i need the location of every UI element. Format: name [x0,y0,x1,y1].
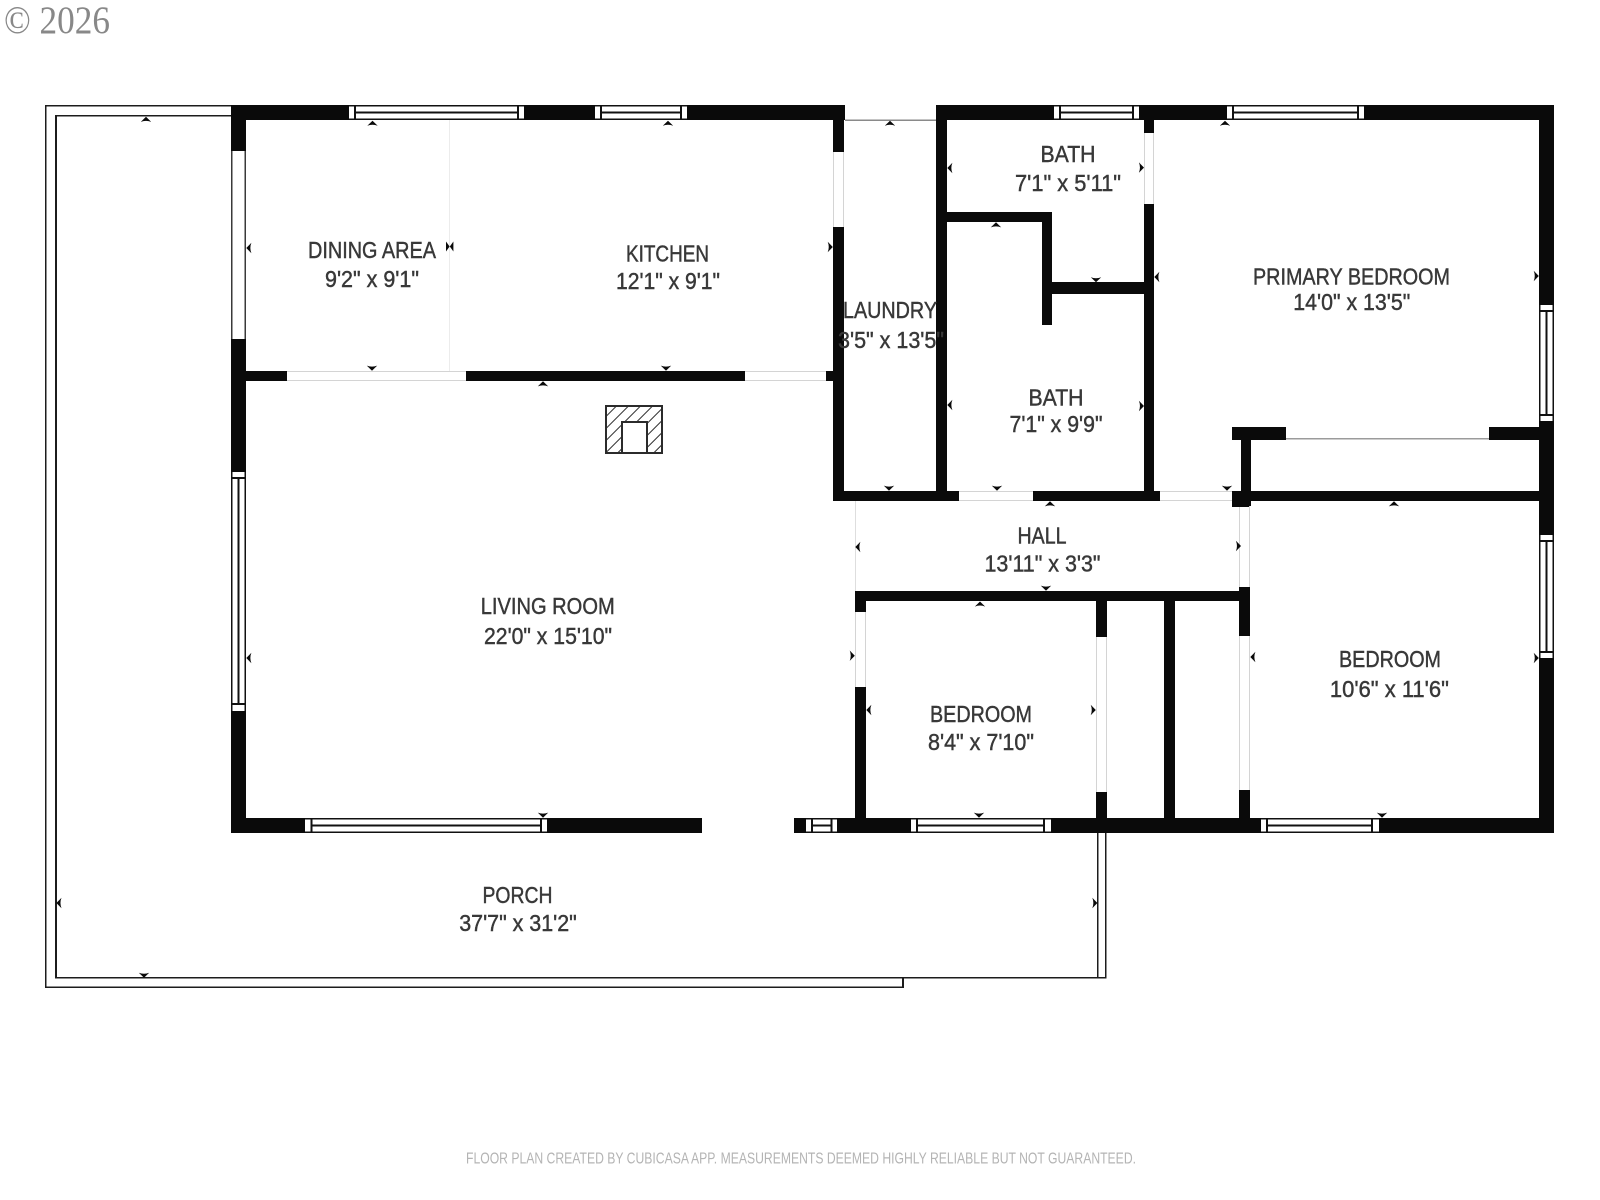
svg-text:PORCH: PORCH [483,882,553,908]
svg-text:BATH: BATH [1029,385,1084,411]
svg-text:22'0" x 15'10": 22'0" x 15'10" [484,623,612,649]
svg-text:8'4" x 7'10": 8'4" x 7'10" [928,729,1034,755]
svg-text:37'7" x 31'2": 37'7" x 31'2" [459,910,577,936]
svg-text:7'1" x 9'9": 7'1" x 9'9" [1010,411,1103,437]
svg-text:12'1" x 9'1": 12'1" x 9'1" [616,268,720,294]
svg-text:3'5" x 13'5": 3'5" x 13'5" [838,327,944,353]
svg-text:HALL: HALL [1018,523,1067,549]
svg-text:BATH: BATH [1041,141,1096,167]
svg-text:BEDROOM: BEDROOM [930,701,1032,727]
svg-text:LIVING ROOM: LIVING ROOM [481,593,615,619]
svg-text:BEDROOM: BEDROOM [1339,646,1441,672]
svg-text:7'1" x 5'11": 7'1" x 5'11" [1015,170,1121,196]
svg-text:PRIMARY BEDROOM: PRIMARY BEDROOM [1253,264,1450,290]
svg-text:10'6" x 11'6": 10'6" x 11'6" [1330,676,1449,702]
svg-text:KITCHEN: KITCHEN [626,241,709,267]
svg-text:© 2026: © 2026 [4,0,110,42]
svg-text:LAUNDRY: LAUNDRY [843,297,937,323]
svg-text:13'11" x 3'3": 13'11" x 3'3" [985,551,1101,577]
svg-text:FLOOR PLAN CREATED BY CUBICASA: FLOOR PLAN CREATED BY CUBICASA APP. MEAS… [466,1151,1136,1168]
svg-text:DINING AREA: DINING AREA [308,237,436,263]
svg-text:14'0" x 13'5": 14'0" x 13'5" [1293,289,1410,315]
svg-text:9'2" x 9'1": 9'2" x 9'1" [325,266,419,292]
